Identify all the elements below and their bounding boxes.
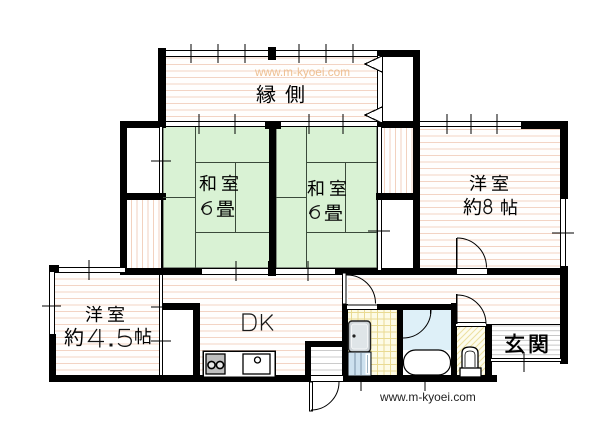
svg-text:www.m-kyoei.com: www.m-kyoei.com	[379, 390, 476, 404]
svg-text:www.m-kyoei.com: www.m-kyoei.com	[254, 65, 350, 79]
